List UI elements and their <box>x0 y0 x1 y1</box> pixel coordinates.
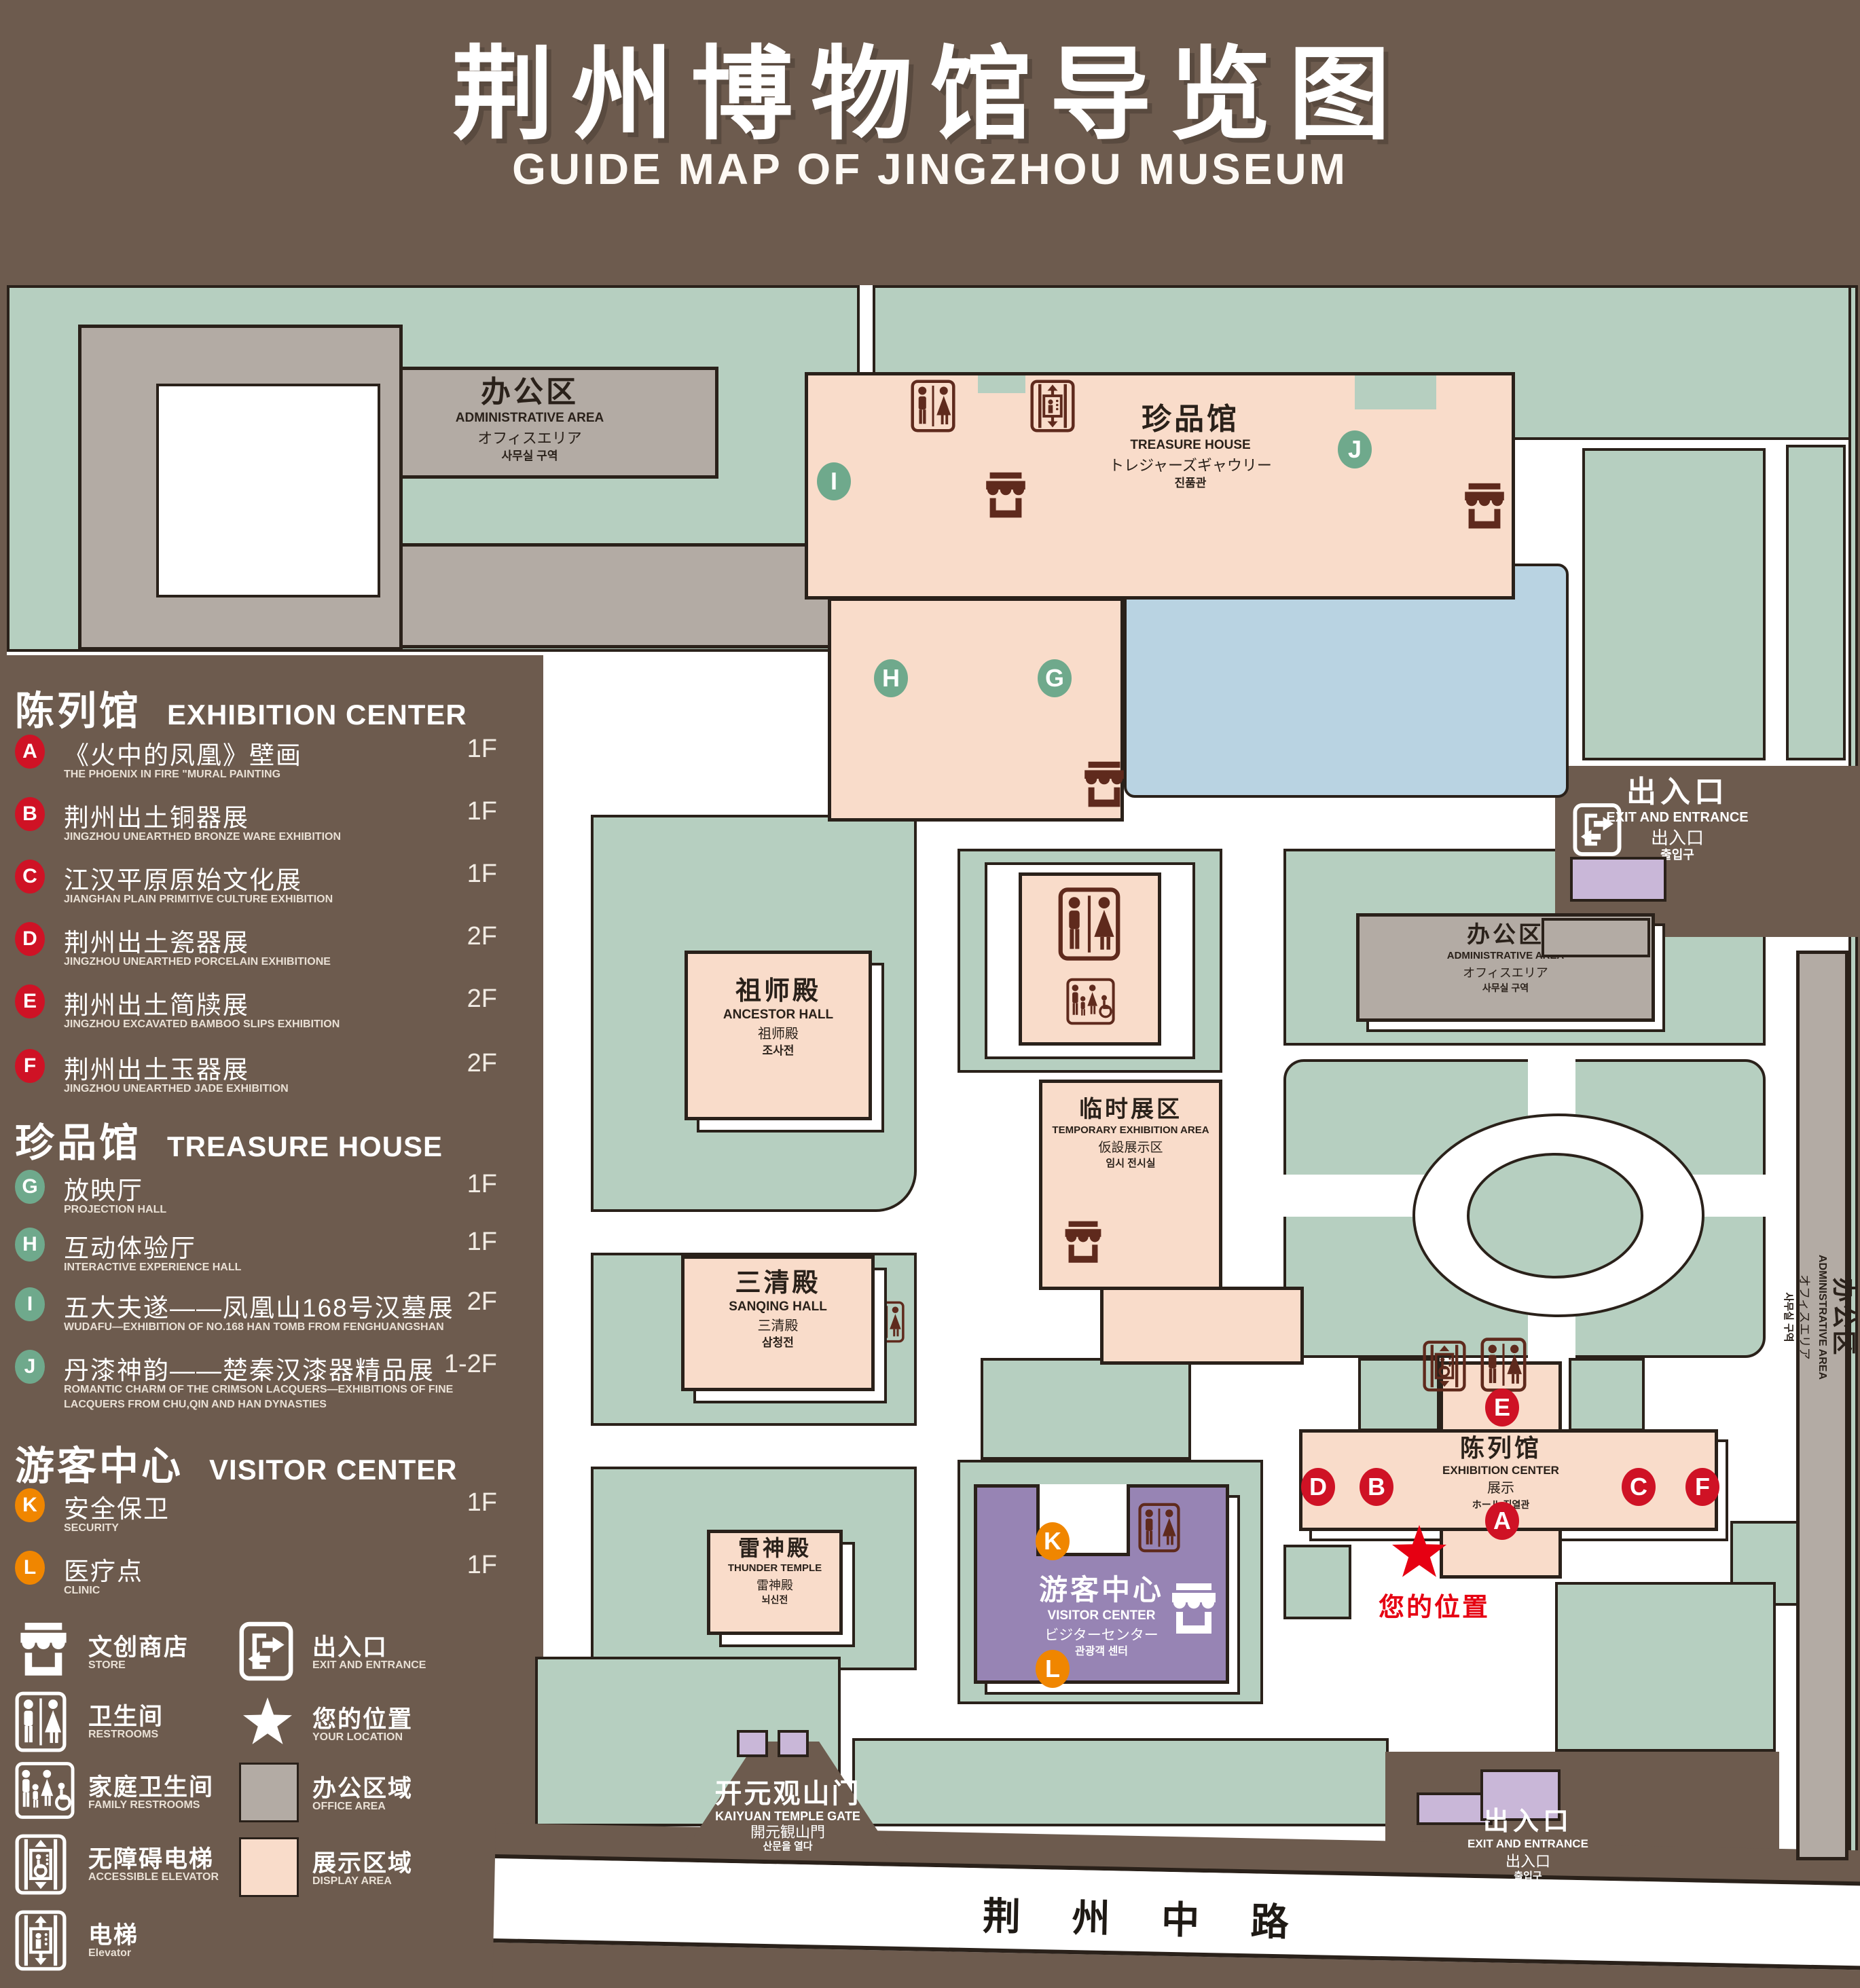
map-marker-F: F <box>1685 1468 1719 1506</box>
page-subtitle: GUIDE MAP OF JINGZHOU MUSEUM <box>0 144 1860 194</box>
sanqing-hall-label: 三清殿 SANQING HALL 三清殿 삼청전 <box>681 1268 875 1350</box>
legend-item-cn: 《火中的凤凰》壁画 <box>64 735 302 771</box>
store-icon <box>15 1621 72 1678</box>
legend-symbol-cn: 出入口 <box>312 1628 388 1663</box>
exit-cn-sub: 出入口 <box>1426 1853 1630 1870</box>
lawn <box>1848 285 1858 1867</box>
south-exit-label: 出入口 EXIT AND ENTRANCE 出入口 출입구 <box>1426 1807 1630 1882</box>
exhibition-center-label: 陈列馆 EXHIBITION CENTER 展示 ホール 진열관 <box>1399 1434 1603 1510</box>
store-icon <box>1061 1219 1106 1266</box>
map-marker-K: K <box>1036 1522 1070 1560</box>
legend-symbol-en: YOUR LOCATION <box>312 1731 403 1744</box>
restroom-icon <box>1058 886 1120 962</box>
legend-section-en: TREASURE HOUSE <box>167 1130 443 1163</box>
guide-map-page: 荆州博物馆导览图 GUIDE MAP OF JINGZHOU MUSEUM 荆 … <box>0 0 1860 1988</box>
legend-section-visitor-center: 游客中心 VISITOR CENTER <box>15 1434 458 1491</box>
legend-item-en: JINGZHOU EXCAVATED BAMBOO SLIPS EXHIBITI… <box>64 1017 458 1032</box>
legend-marker: D <box>15 922 45 956</box>
map-marker-H: H <box>874 659 908 697</box>
legend-item-floor: 2F <box>467 984 497 1014</box>
legend-symbol-en: ACCESSIBLE ELEVATOR <box>88 1871 219 1883</box>
legend-marker: I <box>15 1287 45 1321</box>
label-jp: オフィスエリア <box>1796 1181 1814 1453</box>
exit-en: EXIT AND ENTRANCE <box>1426 1837 1630 1851</box>
family-restroom-icon <box>1066 972 1115 1031</box>
legend-symbol-en: RESTROOMS <box>88 1729 158 1741</box>
gate-pillar <box>737 1730 768 1757</box>
legend-item-cn: 荆州出土铜器展 <box>64 797 249 834</box>
map-marker-A: A <box>1485 1502 1519 1540</box>
legend-item-cn: 互动体验厅 <box>64 1228 196 1264</box>
map-marker-G: G <box>1038 659 1072 697</box>
label-cn: 祖师殿 <box>685 976 872 1006</box>
legend-symbol-en: OFFICE AREA <box>312 1801 386 1813</box>
building-small <box>1542 918 1650 957</box>
legend-item-en: SECURITY <box>64 1521 458 1536</box>
map-marker-B: B <box>1360 1468 1393 1506</box>
map-marker-J: J <box>1338 430 1372 468</box>
lawn <box>852 1738 1389 1826</box>
legend-section-cn: 珍品馆 <box>15 1111 141 1168</box>
legend-symbol-en: EXIT AND ENTRANCE <box>312 1659 426 1672</box>
lawn <box>1283 1545 1351 1619</box>
building-admin-top-left <box>399 543 841 648</box>
courtyard <box>156 384 380 597</box>
admin-top-left-label: 办公区 ADMINISTRATIVE AREA オフィスエリア 사무실 구역 <box>380 375 679 462</box>
your-location-star-icon <box>1391 1525 1448 1579</box>
admin-east-label-inner: 办公区 ADMINISTRATIVE AREA オフィスエリア 사무실 구역 <box>1782 1181 1860 1453</box>
lawn <box>1582 448 1766 760</box>
map-marker-C: C <box>1622 1468 1656 1506</box>
label-cn: 临时展区 <box>1039 1097 1222 1123</box>
thunder-temple-label: 雷神殿 THUNDER TEMPLE 雷神殿 뇌신전 <box>693 1536 856 1606</box>
legend-marker: A <box>15 735 45 769</box>
legend-symbol-cn: 展示区域 <box>312 1844 413 1879</box>
office-area-swatch <box>239 1763 299 1822</box>
legend-symbol-en: DISPLAY AREA <box>312 1875 392 1888</box>
label-kr: 관광객 센터 <box>974 1646 1229 1659</box>
building-temporary-exhibition <box>1100 1287 1304 1365</box>
ancestor-hall-label: 祖师殿 ANCESTOR HALL 祖师殿 조사전 <box>685 976 872 1058</box>
exit-en: EXIT AND ENTRANCE <box>1582 810 1772 826</box>
legend-item-floor: 2F <box>467 1287 497 1317</box>
label-cn: 办公区 <box>380 375 679 409</box>
legend-section-cn: 游客中心 <box>15 1434 183 1491</box>
exit-cn: 出入口 <box>1426 1807 1630 1837</box>
label-cn: 雷神殿 <box>693 1536 856 1561</box>
legend-symbol-cn: 无障碍电梯 <box>88 1840 214 1875</box>
legend-marker: B <box>15 797 45 831</box>
legend-item-floor: 2F <box>467 922 497 951</box>
legend-symbol-cn: 家庭卫生间 <box>88 1768 214 1803</box>
legend-marker: K <box>15 1488 45 1522</box>
legend-item-floor: 2F <box>467 1049 497 1078</box>
label-en: THUNDER TEMPLE <box>693 1562 856 1574</box>
label-jp: 展示 <box>1399 1481 1603 1496</box>
gate-pillar <box>778 1730 809 1757</box>
legend-item-en: JINGZHOU UNEARTHED PORCELAIN EXHIBITIONE <box>64 955 458 970</box>
label-cn: 陈列馆 <box>1399 1434 1603 1462</box>
accessible-elevator-icon <box>1423 1339 1466 1393</box>
gate-name-en: KAIYUAN TEMPLE GATE <box>645 1809 930 1823</box>
exit-icon <box>239 1621 293 1681</box>
label-kr: 사무실 구역 <box>1356 982 1655 993</box>
legend-item-floor: 1F <box>467 860 497 889</box>
your-location-label: 您的位置 <box>1379 1586 1490 1623</box>
lawn <box>1786 445 1846 760</box>
label-en: TEMPORARY EXHIBITION AREA <box>1039 1124 1222 1136</box>
legend-item-en: ROMANTIC CHARM OF THE CRIMSON LACQUERS—E… <box>64 1382 458 1412</box>
legend-marker: F <box>15 1049 45 1083</box>
label-en: ADMINISTRATIVE AREA <box>380 411 679 426</box>
legend-section-cn: 陈列馆 <box>15 679 141 736</box>
store-icon <box>1460 481 1509 532</box>
legend-item-cn: 五大夫遂——凤凰山168号汉墓展 <box>64 1287 454 1324</box>
label-jp: トレジャーズギャウリー <box>1055 457 1326 475</box>
legend-item-cn: 荆州出土简牍展 <box>64 984 249 1021</box>
label-en: EXHIBITION CENTER <box>1399 1464 1603 1477</box>
accessible-elevator-icon <box>15 1833 67 1896</box>
legend-section-en: VISITOR CENTER <box>209 1454 458 1486</box>
lawn <box>1569 1358 1645 1431</box>
label-kr: 사무실 구역 <box>1782 1181 1796 1453</box>
legend-marker: C <box>15 860 45 894</box>
label-cn: 珍品馆 <box>1055 402 1326 437</box>
lawn <box>981 1358 1191 1460</box>
map-marker-I: I <box>817 462 851 500</box>
legend-item-floor: 1F <box>467 735 497 764</box>
label-en: ADMINISTRATIVE AREA <box>1816 1181 1828 1453</box>
legend-marker: H <box>15 1228 45 1262</box>
legend-item-en: JINGZHOU UNEARTHED BRONZE WARE EXHIBITIO… <box>64 830 458 845</box>
treasure-house-notch <box>978 375 1025 393</box>
label-jp: 雷神殿 <box>693 1579 856 1593</box>
label-jp: オフィスエリア <box>1356 966 1655 980</box>
label-kr: 삼청전 <box>681 1336 875 1350</box>
legend-item-cn: 丹漆神韵——楚秦汉漆器精品展 <box>64 1350 435 1386</box>
label-kr: 진품관 <box>1055 477 1326 490</box>
legend-symbol-cn: 电梯 <box>88 1916 139 1951</box>
east-exit-label: 出入口 EXIT AND ENTRANCE 出入口 출입구 <box>1582 775 1772 862</box>
map-marker-E: E <box>1485 1388 1519 1426</box>
legend-item-cn: 安全保卫 <box>64 1488 170 1525</box>
legend-item-floor: 1F <box>467 797 497 826</box>
kaiyuan-gate-label: 开元观山门 KAIYUAN TEMPLE GATE 開元観山門 산문을 열다 <box>645 1779 930 1852</box>
legend-item-floor: 1F <box>467 1170 497 1199</box>
legend-section-en: EXHIBITION CENTER <box>167 699 467 731</box>
label-en: ANCESTOR HALL <box>685 1008 872 1023</box>
legend-marker: E <box>15 984 45 1018</box>
legend-symbol-cn: 文创商店 <box>88 1628 189 1663</box>
exit-kr: 출입구 <box>1426 1871 1630 1882</box>
label-kr: 임시 전시실 <box>1039 1158 1222 1169</box>
legend-item-en: JINGZHOU UNEARTHED JADE EXHIBITION <box>64 1082 458 1097</box>
legend-item-cn: 荆州出土瓷器展 <box>64 922 249 959</box>
legend-item-floor: 1-2F <box>444 1350 497 1379</box>
gate-name-kr: 산문을 열다 <box>645 1841 930 1853</box>
map-marker-D: D <box>1301 1468 1335 1506</box>
family-restroom-icon <box>15 1761 75 1820</box>
legend-symbol-cn: 您的位置 <box>312 1700 413 1735</box>
exit-cn: 出入口 <box>1582 775 1772 810</box>
gate-name-cn: 开元观山门 <box>645 1779 930 1809</box>
restroom-icon <box>1138 1502 1180 1553</box>
legend-symbol-cn: 卫生间 <box>88 1697 164 1732</box>
legend-marker: G <box>15 1170 45 1204</box>
exit-cn-sub: 出入口 <box>1582 828 1772 849</box>
legend-item-cn: 荆州出土玉器展 <box>64 1049 249 1086</box>
label-kr: 뇌신전 <box>693 1594 856 1605</box>
legend-section-exhibition-center: 陈列馆 EXHIBITION CENTER <box>15 679 467 736</box>
treasure-house-notch <box>1355 375 1436 409</box>
legend-symbol-cn: 办公区域 <box>312 1769 413 1804</box>
temporary-exhibition-label: 临时展区 TEMPORARY EXHIBITION AREA 仮設展示区 임시 … <box>1039 1097 1222 1169</box>
display-area-swatch <box>239 1837 299 1897</box>
legend-item-floor: 1F <box>467 1228 497 1257</box>
store-icon <box>981 470 1030 521</box>
label-cn: 办公区 <box>1828 1181 1860 1453</box>
label-kr: 사무실 구역 <box>380 449 679 463</box>
label-en: SANQING HALL <box>681 1300 875 1314</box>
label-jp: オフィスエリア <box>380 430 679 447</box>
store-icon <box>1080 759 1129 811</box>
legend-marker: L <box>15 1551 45 1585</box>
legend-symbol-en: FAMILY RESTROOMS <box>88 1799 200 1811</box>
legend-item-en: WUDAFU—EXHIBITION OF NO.168 HAN TOMB FRO… <box>64 1320 458 1335</box>
garden-path <box>1283 1175 1426 1217</box>
legend-item-floor: 1F <box>467 1551 497 1580</box>
legend-item-en: THE PHOENIX IN FIRE "MURAL PAINTING <box>64 767 458 782</box>
legend-item-en: JIANGHAN PLAIN PRIMITIVE CULTURE EXHIBIT… <box>64 892 458 907</box>
label-jp: 祖师殿 <box>685 1027 872 1042</box>
gate-name-jp: 開元観山門 <box>645 1824 930 1841</box>
legend-marker: J <box>15 1350 45 1384</box>
legend-item-floor: 1F <box>467 1488 497 1517</box>
restroom-icon <box>911 379 955 433</box>
elevator-icon <box>1030 379 1075 433</box>
restroom-icon <box>1480 1336 1527 1393</box>
garden-island <box>1467 1153 1643 1278</box>
label-kr: 조사전 <box>685 1044 872 1058</box>
legend-item-en: PROJECTION HALL <box>64 1202 458 1217</box>
legend-section-treasure-house: 珍品馆 TREASURE HOUSE <box>15 1111 443 1168</box>
location-star-icon <box>242 1697 293 1746</box>
page-title: 荆州博物馆导览图 <box>0 12 1860 160</box>
legend-item-en: INTERACTIVE EXPERIENCE HALL <box>64 1260 458 1275</box>
legend-item-en: CLINIC <box>64 1583 458 1598</box>
legend-symbol-en: Elevator <box>88 1947 131 1959</box>
building-small <box>1570 857 1666 902</box>
label-en: TREASURE HOUSE <box>1055 438 1326 453</box>
legend-item-cn: 江汉平原原始文化展 <box>64 860 302 896</box>
restroom-icon <box>15 1691 67 1753</box>
road-name: 荆 州 中 路 <box>874 1883 1418 1949</box>
label-cn: 三清殿 <box>681 1268 875 1298</box>
treasure-house-label: 珍品馆 TREASURE HOUSE トレジャーズギャウリー 진품관 <box>1055 402 1326 490</box>
legend-symbol-en: STORE <box>88 1659 126 1672</box>
label-jp: 仮設展示区 <box>1039 1141 1222 1156</box>
lawn <box>1555 1582 1776 1752</box>
legend-item-cn: 医疗点 <box>64 1551 143 1587</box>
label-jp: 三清殿 <box>681 1319 875 1334</box>
legend-item-cn: 放映厅 <box>64 1170 143 1207</box>
map-marker-L: L <box>1036 1650 1070 1688</box>
store-icon <box>1167 1581 1221 1638</box>
elevator-icon <box>15 1909 67 1972</box>
